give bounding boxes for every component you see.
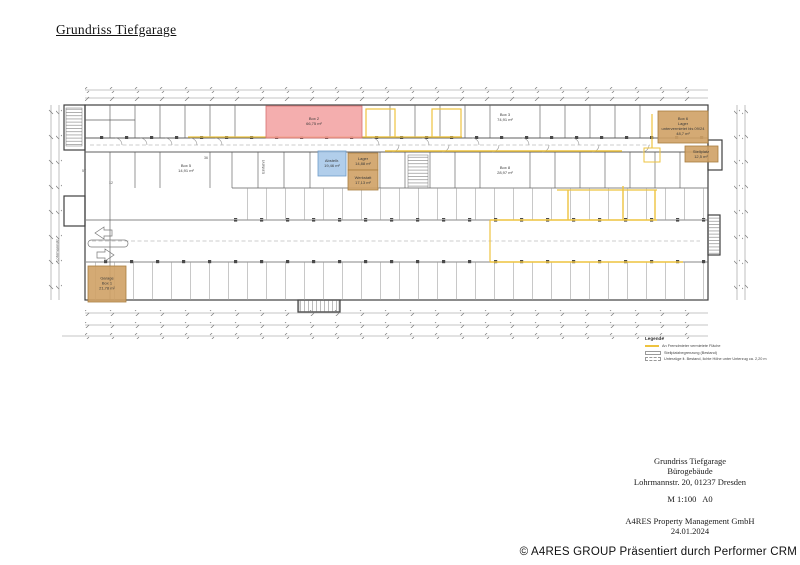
- room-garage-area: [88, 266, 126, 302]
- legend: Legende An Fremdmieter vermietete Fläche…: [645, 336, 780, 364]
- street-label: Lohrmannstr.: [55, 238, 60, 261]
- legend-swatch-yellow-icon: [645, 345, 659, 348]
- drive-arrows: [88, 227, 128, 261]
- room-box6-area: [658, 111, 708, 143]
- arrow-left-icon: [95, 227, 112, 239]
- title-block-address: Lohrmannstr. 20, 01237 Dresden: [590, 477, 790, 487]
- room-lager-area: [348, 153, 378, 170]
- title-block-scale: M 1:100 A0: [590, 494, 790, 504]
- room-abstellraum-area: [318, 151, 346, 176]
- legend-item: Unterzüge lt. Bestand, lichte Höhe unter…: [645, 357, 780, 361]
- legend-swatch-dashed-icon: [645, 357, 661, 361]
- entrance-label: Einfahrt: [261, 160, 266, 174]
- title-block-company: A4RES Property Management GmbH: [590, 516, 790, 526]
- legend-item-label: Stellplatzbegrenzung (Bestand): [664, 351, 717, 355]
- plan-number: 12: [109, 181, 113, 185]
- legend-item: An Fremdmieter vermietete Fläche: [645, 344, 780, 348]
- plan-number: 36: [204, 156, 208, 160]
- legend-swatch-outline-icon: [645, 351, 661, 355]
- title-block: Grundriss Tiefgarage Bürogebäude Lohrman…: [590, 456, 790, 537]
- room-stellplatz-area: [685, 146, 718, 162]
- arrow-right-icon: [97, 249, 114, 261]
- room-werkstatt-area: [348, 170, 378, 190]
- watermark: © A4RES GROUP Präsentiert durch Performe…: [520, 546, 797, 558]
- legend-item-label: An Fremdmieter vermietete Fläche: [662, 344, 720, 348]
- legend-item-label: Unterzüge lt. Bestand, lichte Höhe unter…: [664, 357, 767, 361]
- legend-item: Stellplatzbegrenzung (Bestand): [645, 351, 780, 355]
- parking-stalls: [86, 188, 708, 300]
- highlighted-walls-yellow: [188, 109, 683, 262]
- legend-title: Legende: [645, 336, 780, 341]
- title-block-building: Bürogebäude: [590, 466, 790, 476]
- plan-number: 57: [82, 169, 86, 173]
- room-box2-area: [266, 106, 362, 138]
- title-block-project: Grundriss Tiefgarage: [590, 456, 790, 466]
- title-block-date: 24.01.2024: [590, 526, 790, 536]
